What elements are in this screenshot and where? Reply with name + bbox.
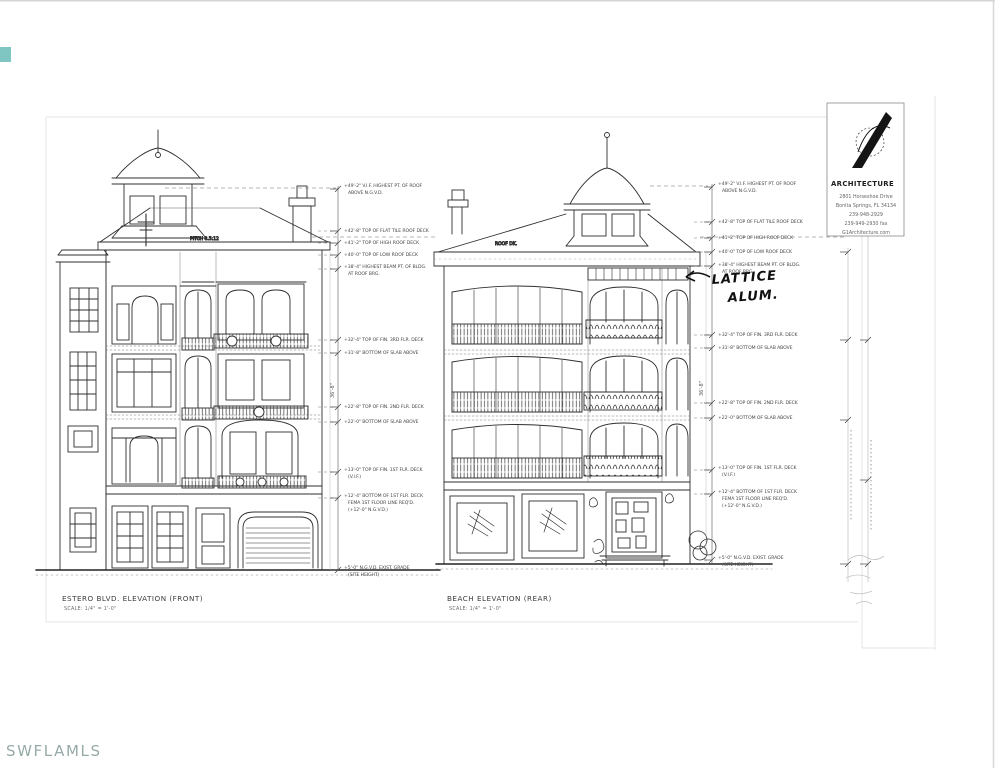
callout-text: +31'-8" BOTTOM OF SLAB ABOVE [718, 345, 793, 351]
drawing-titles: ESTERO BLVD. ELEVATION (FRONT) SCALE: 1/… [62, 594, 552, 612]
teal-scan-mark [0, 47, 11, 62]
callout-text: +31'-8" BOTTOM OF SLAB ABOVE [344, 350, 419, 356]
callout-text: +12'-4" BOTTOM OF 1ST FLR. DECK [344, 493, 424, 499]
rear-facade-walls [444, 266, 690, 564]
callout-text: ABOVE N.G.V.D. [348, 190, 383, 196]
roof-deck-note: ROOF DK. [495, 241, 517, 247]
callout-text: +32'-4" TOP OF FIN. 3RD FLR. DECK [718, 332, 799, 338]
scanned-drawing-sheet: PITCH 8.5:12 [0, 0, 995, 768]
front-ground-floor [112, 506, 318, 568]
architect-address-line: 2801 Horseshoe Drive [839, 194, 892, 200]
sheet-border-lines [46, 96, 935, 650]
callout-text: ABOVE N.G.V.D. [722, 188, 757, 194]
callout-text: +5'-0" N.G.V.D. EXIST. GRADE [718, 555, 784, 561]
callout-text: FEMA 1ST FLOOR LINE REQ'D. [348, 500, 414, 506]
callout-text: +42'-8" TOP OF FLAT TILE ROOF DECK [344, 228, 430, 234]
overall-height-dim: 36'-8" [330, 383, 336, 398]
callout-text: +5'-0" N.G.V.D. EXIST. GRADE [344, 565, 410, 571]
front-bayC-windows [214, 282, 308, 488]
architect-firm-name: ARCHITECTURE [831, 180, 894, 188]
callout-text: AT ROOF BRG. [348, 271, 380, 277]
elevation-sheet-svg: PITCH 8.5:12 [0, 0, 995, 768]
callout-text: +40'-0" TOP OF LOW ROOF DECK [344, 252, 419, 258]
rear-callout-column: +49'-2" V.I.F. HIGHEST PT. OF ROOF ABOVE… [694, 181, 804, 568]
pencil-scribbles [846, 555, 884, 604]
rear-arched-bay [584, 287, 662, 478]
front-bayA-windows [112, 286, 176, 484]
rear-storefront-band [444, 482, 690, 490]
callout-text: +49'-2" V.I.F. HIGHEST PT. OF ROOF [344, 183, 422, 189]
callout-text: +13'-0" TOP OF FIN. 1ST FLR. DECK [718, 465, 798, 471]
roof-pitch-note: PITCH 8.5:12 [190, 236, 219, 242]
front-cupola [112, 130, 206, 238]
rear-ground-floor [450, 492, 716, 566]
callout-text: (+12'-0" N.G.V.D.) [722, 503, 762, 509]
callout-text: +49'-2" V.I.F. HIGHEST PT. OF ROOF [718, 181, 796, 187]
callout-text: +22'-8" TOP OF FIN. 2ND FLR. DECK [718, 400, 799, 406]
callout-text: +38'-4" HIGHEST BEAM PT. OF BLDG. [344, 264, 426, 270]
architect-logo-block: ARCHITECTURE 2801 Horseshoe Drive Bonita… [827, 103, 904, 236]
lattice-note: LATTICE ALUM. [686, 268, 779, 306]
callout-text: (SITE HEIGHT) [348, 572, 380, 578]
architect-address-line: 239-949-2930 fax [845, 221, 888, 227]
callout-text: +32'-4" TOP OF FIN. 3RD FLR. DECK [344, 337, 425, 343]
architect-address-line: G1Architecture.com [842, 230, 890, 236]
rear-cupola [564, 133, 650, 247]
callout-text: FEMA 1ST FLOOR LINE REQ'D. [722, 496, 788, 502]
callout-text: +40'-0" TOP OF LOW ROOF DECK [718, 249, 793, 255]
callout-text: +22'-8" TOP OF FIN. 2ND FLR. DECK [344, 404, 425, 410]
architect-address-line: Bonita Springs, FL 34134 [836, 203, 896, 209]
rear-roof [434, 190, 700, 266]
callout-text: +41'-2" TOP OF HIGH ROOF DECK [718, 235, 794, 241]
callout-text: +22'-0" BOTTOM OF SLAB ABOVE [344, 419, 419, 425]
mls-watermark: SWFLAMLS [6, 742, 102, 760]
callout-text: +13'-0" TOP OF FIN. 1ST FLR. DECK [344, 467, 424, 473]
lattice-note-line2: ALUM. [726, 287, 779, 306]
lattice-note-line1: LATTICE [711, 268, 777, 288]
callout-text: +41'-2" TOP OF HIGH ROOF DECK [344, 240, 420, 246]
callout-text: +12'-4" BOTTOM OF 1ST FLR. DECK [718, 489, 798, 495]
front-bayB-windows [180, 282, 216, 488]
rear-elevation-title: BEACH ELEVATION (REAR) [447, 594, 552, 603]
front-tower [56, 250, 110, 570]
callout-text: +42'-8" TOP OF FLAT TILE ROOF DECK [718, 219, 804, 225]
overall-height-dim: 36'-8" [699, 381, 705, 396]
callout-text: (SITE HEIGHT) [722, 562, 754, 568]
callout-text: +22'-0" BOTTOM OF SLAB ABOVE [718, 415, 793, 421]
front-elevation-scale: SCALE: 1/4" = 1'-0" [64, 606, 117, 612]
architect-address-line: 239-948-2929 [849, 212, 883, 218]
rear-window-groups [452, 286, 582, 478]
callout-text: (+12'-0" N.G.V.D.) [348, 507, 388, 513]
callout-text: (V.I.F.) [722, 472, 735, 478]
front-callout-column: +49'-2" V.I.F. HIGHEST PT. OF ROOF ABOVE… [318, 183, 430, 578]
callout-text: (V.I.F.) [348, 474, 361, 480]
rear-narrow-arches [666, 290, 688, 476]
rear-lattice-strip [588, 268, 688, 280]
margin-dimension-lines [840, 187, 871, 582]
callout-text: +38'-4" HIGHEST BEAM PT. OF BLDG. [718, 262, 800, 268]
rear-elevation-scale: SCALE: 1/4" = 1'-0" [449, 606, 502, 612]
front-elevation-title: ESTERO BLVD. ELEVATION (FRONT) [62, 594, 203, 603]
